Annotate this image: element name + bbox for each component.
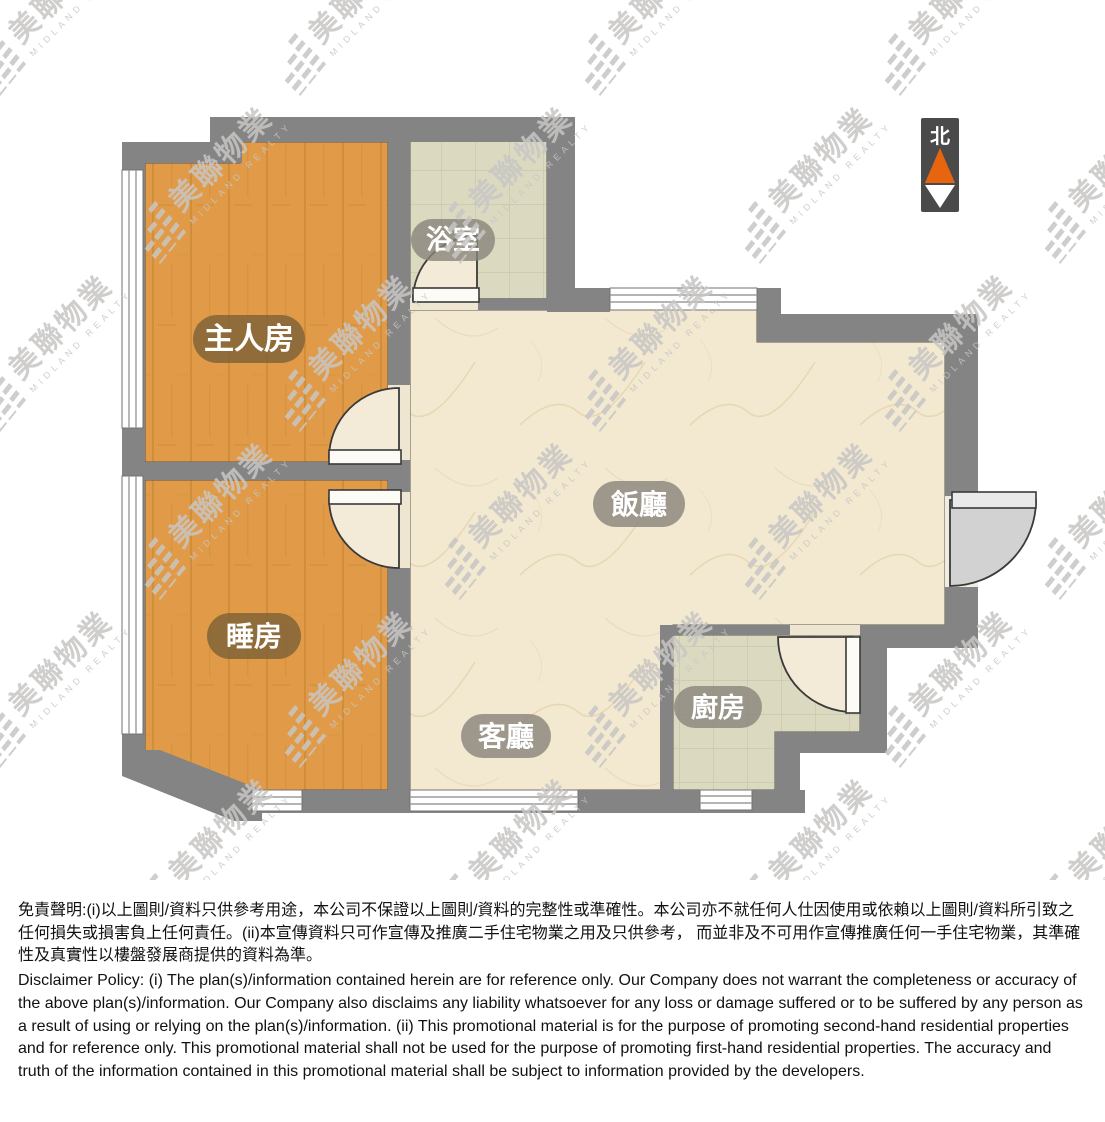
room-label-bathroom: 浴室 xyxy=(411,219,495,261)
svg-text:浴室: 浴室 xyxy=(426,224,480,255)
room-label-dining-room: 飯廳 xyxy=(593,481,685,527)
north-indicator: 北 xyxy=(921,118,959,212)
bottom-window-2 xyxy=(410,790,578,811)
svg-text:客廳: 客廳 xyxy=(478,720,534,752)
bottom-window-1 xyxy=(252,790,302,811)
svg-text:主人房: 主人房 xyxy=(204,323,294,356)
master-bedroom-window xyxy=(122,170,143,428)
room-label-master-bedroom: 主人房 xyxy=(193,315,305,363)
dining-top-window xyxy=(610,288,757,310)
svg-text:睡房: 睡房 xyxy=(226,620,282,652)
room-label-bedroom: 睡房 xyxy=(207,613,301,659)
room-label-kitchen: 廚房 xyxy=(674,686,762,728)
north-label: 北 xyxy=(930,125,950,148)
entrance-door xyxy=(950,492,1036,586)
disclaimer-english: Disclaimer Policy: (i) The plan(s)/infor… xyxy=(18,970,1086,1084)
kitchen-window xyxy=(700,790,752,810)
svg-text:廚房: 廚房 xyxy=(691,692,745,723)
room-label-living-room: 客廳 xyxy=(461,714,551,758)
bedroom-window xyxy=(122,476,143,734)
floor-plan-drawing: 主人房 浴室 飯廳 睡房 客廳 廚房 xyxy=(0,0,1105,895)
disclaimer-chinese: 免責聲明:(i)以上圖則/資料只供參考用途，本公司不保證以上圖則/資料的完整性或… xyxy=(18,900,1086,968)
disclaimer: 免責聲明:(i)以上圖則/資料只供參考用途，本公司不保證以上圖則/資料的完整性或… xyxy=(18,900,1086,1086)
svg-text:飯廳: 飯廳 xyxy=(611,488,667,520)
floor-plan: 主人房 浴室 飯廳 睡房 客廳 廚房 xyxy=(0,0,1105,895)
